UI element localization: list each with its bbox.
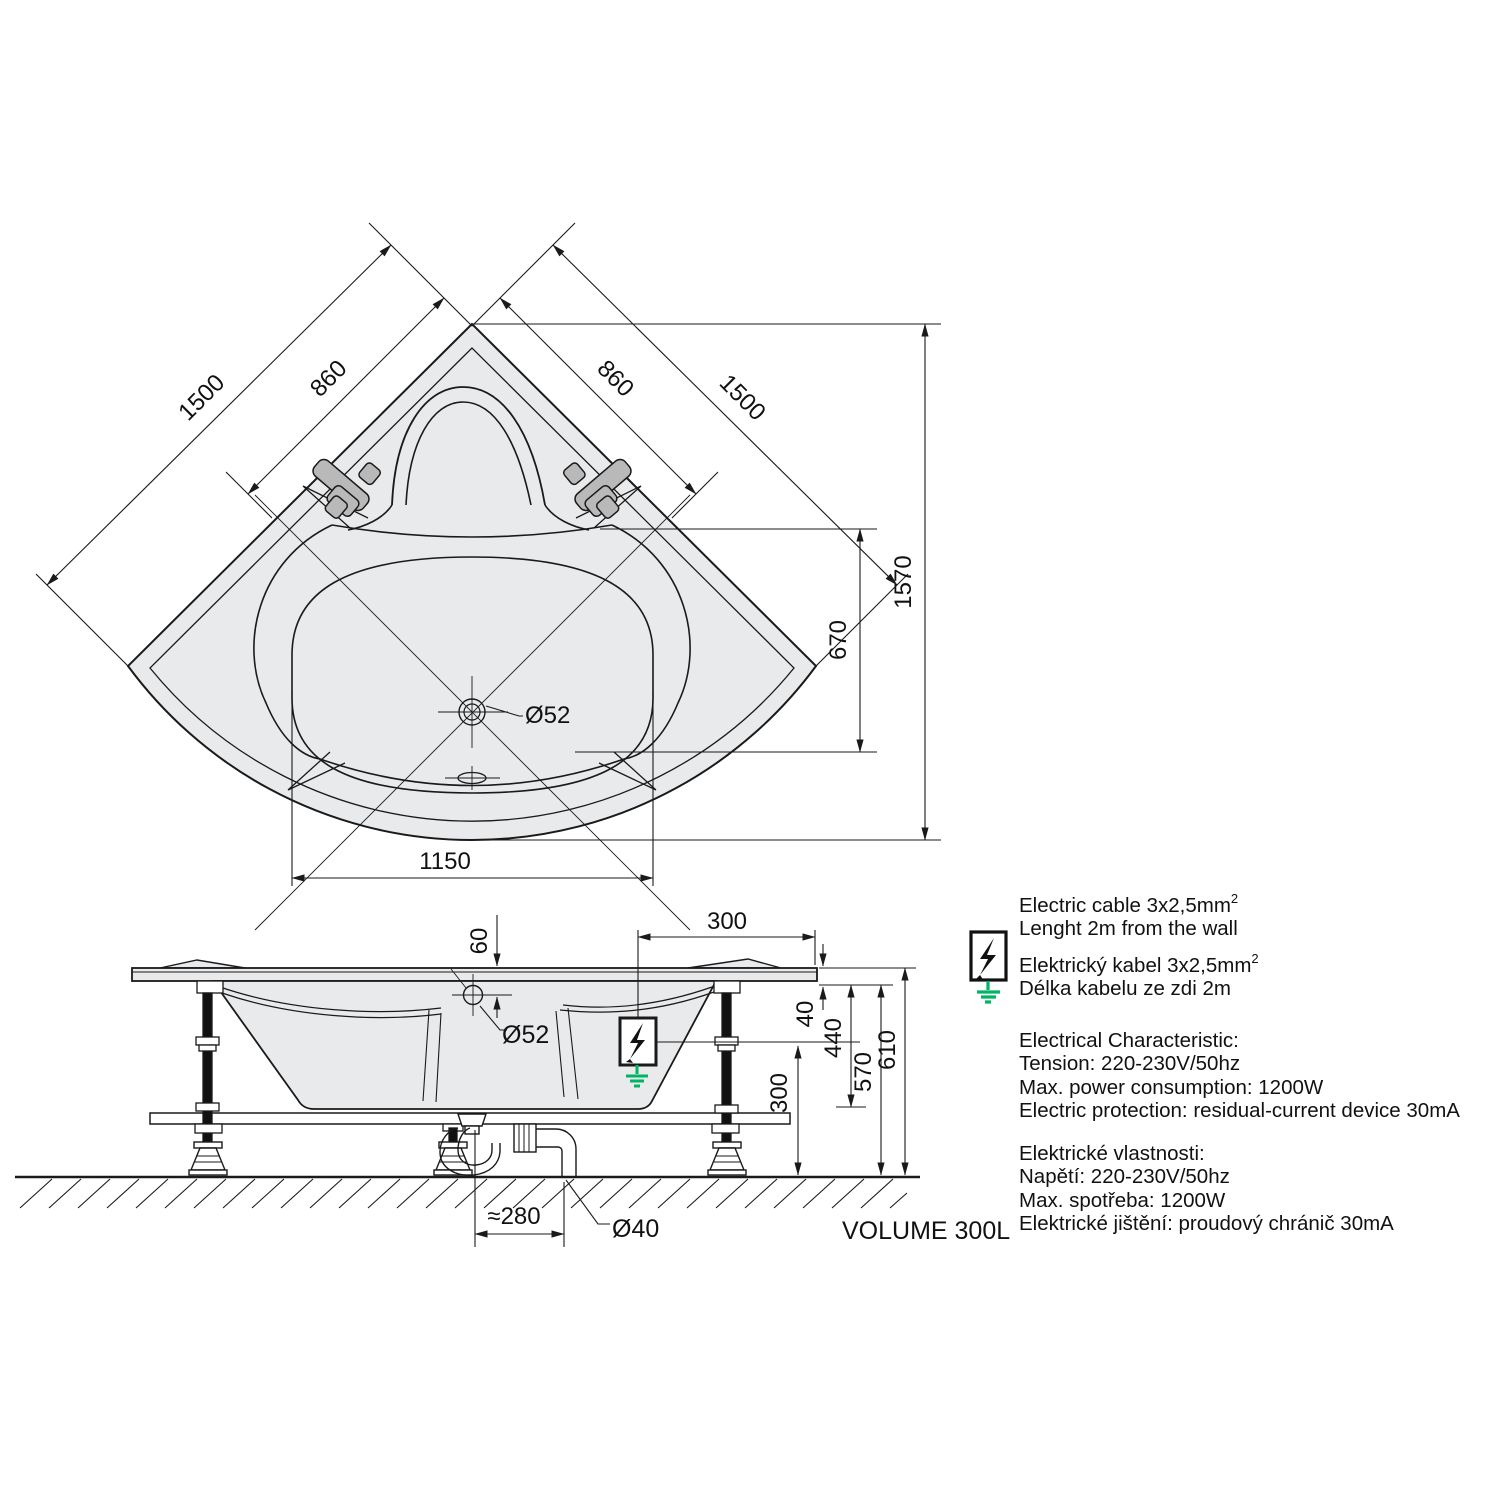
dim-300-top: 300 — [707, 908, 747, 935]
dim-670: 670 — [825, 620, 852, 660]
ground-hatching — [15, 1177, 920, 1208]
dim-860-right: 860 — [592, 355, 639, 402]
note-cz-cable-line1: Elektrický kabel 3x2,5mm2 — [1019, 951, 1259, 977]
overflow-label: Ø52 — [502, 1021, 549, 1049]
technical-drawing-page: 1500 860 860 1500 1570 670 1150 Ø52 — [0, 0, 1500, 1500]
note-en-elec-2: Max. power consumption: 1200W — [1019, 1076, 1324, 1099]
volume-label: VOLUME 300L — [842, 1217, 1010, 1245]
dim-440: 440 — [820, 1018, 847, 1058]
dim-60: 60 — [466, 928, 493, 955]
note-en-elec-3: Electric protection: residual-current de… — [1019, 1099, 1460, 1122]
note-cz-elec-1: Napětí: 220-230V/50hz — [1019, 1165, 1230, 1188]
dim-1500-right: 1500 — [714, 369, 771, 426]
note-en-elec-title: Electrical Characteristic: — [1019, 1029, 1239, 1052]
plan-view — [128, 324, 816, 930]
note-cz-elec-title: Elektrické vlastnosti: — [1019, 1142, 1205, 1165]
foot-center — [434, 1142, 472, 1175]
electric-hazard-icon-legend — [971, 932, 1006, 1002]
dim-280: ≈280 — [487, 1203, 540, 1230]
note-cz-elec-2: Max. spotřeba: 1200W — [1019, 1189, 1226, 1212]
dim-610: 610 — [874, 1030, 901, 1070]
note-cz-cable-line2: Délka kabelu ze zdi 2m — [1019, 977, 1231, 1000]
dim-40: 40 — [792, 1001, 819, 1028]
pipe-label: Ø40 — [612, 1215, 659, 1243]
dim-1150: 1150 — [419, 848, 471, 875]
tub-outline-plan — [128, 324, 816, 840]
ground-icon-legend — [977, 981, 1000, 1002]
dim-570: 570 — [850, 1052, 877, 1092]
dim-1570: 1570 — [890, 555, 917, 608]
dim-860-left: 860 — [305, 355, 352, 402]
bathtub-drawing: 1500 860 860 1500 1570 670 1150 Ø52 — [0, 0, 1500, 1500]
side-view — [15, 930, 920, 1208]
note-en-elec-1: Tension: 220-230V/50hz — [1019, 1052, 1240, 1075]
note-cz-elec-3: Elektrické jištění: proudový chránič 30m… — [1019, 1212, 1394, 1235]
note-en-cable-line2: Lenght 2m from the wall — [1019, 917, 1238, 940]
dim-300-vertical: 300 — [766, 1073, 793, 1113]
foot-right — [708, 1142, 746, 1175]
dim-1500-left: 1500 — [173, 369, 230, 426]
drain-label-plan: Ø52 — [525, 702, 570, 729]
note-en-cable-line1: Electric cable 3x2,5mm2 — [1019, 891, 1238, 917]
foot-left — [189, 1142, 227, 1175]
feet — [189, 1142, 746, 1175]
notes-text: Electric cable 3x2,5mm2 Lenght 2m from t… — [1019, 891, 1460, 1235]
tub-rim-side — [132, 968, 817, 981]
